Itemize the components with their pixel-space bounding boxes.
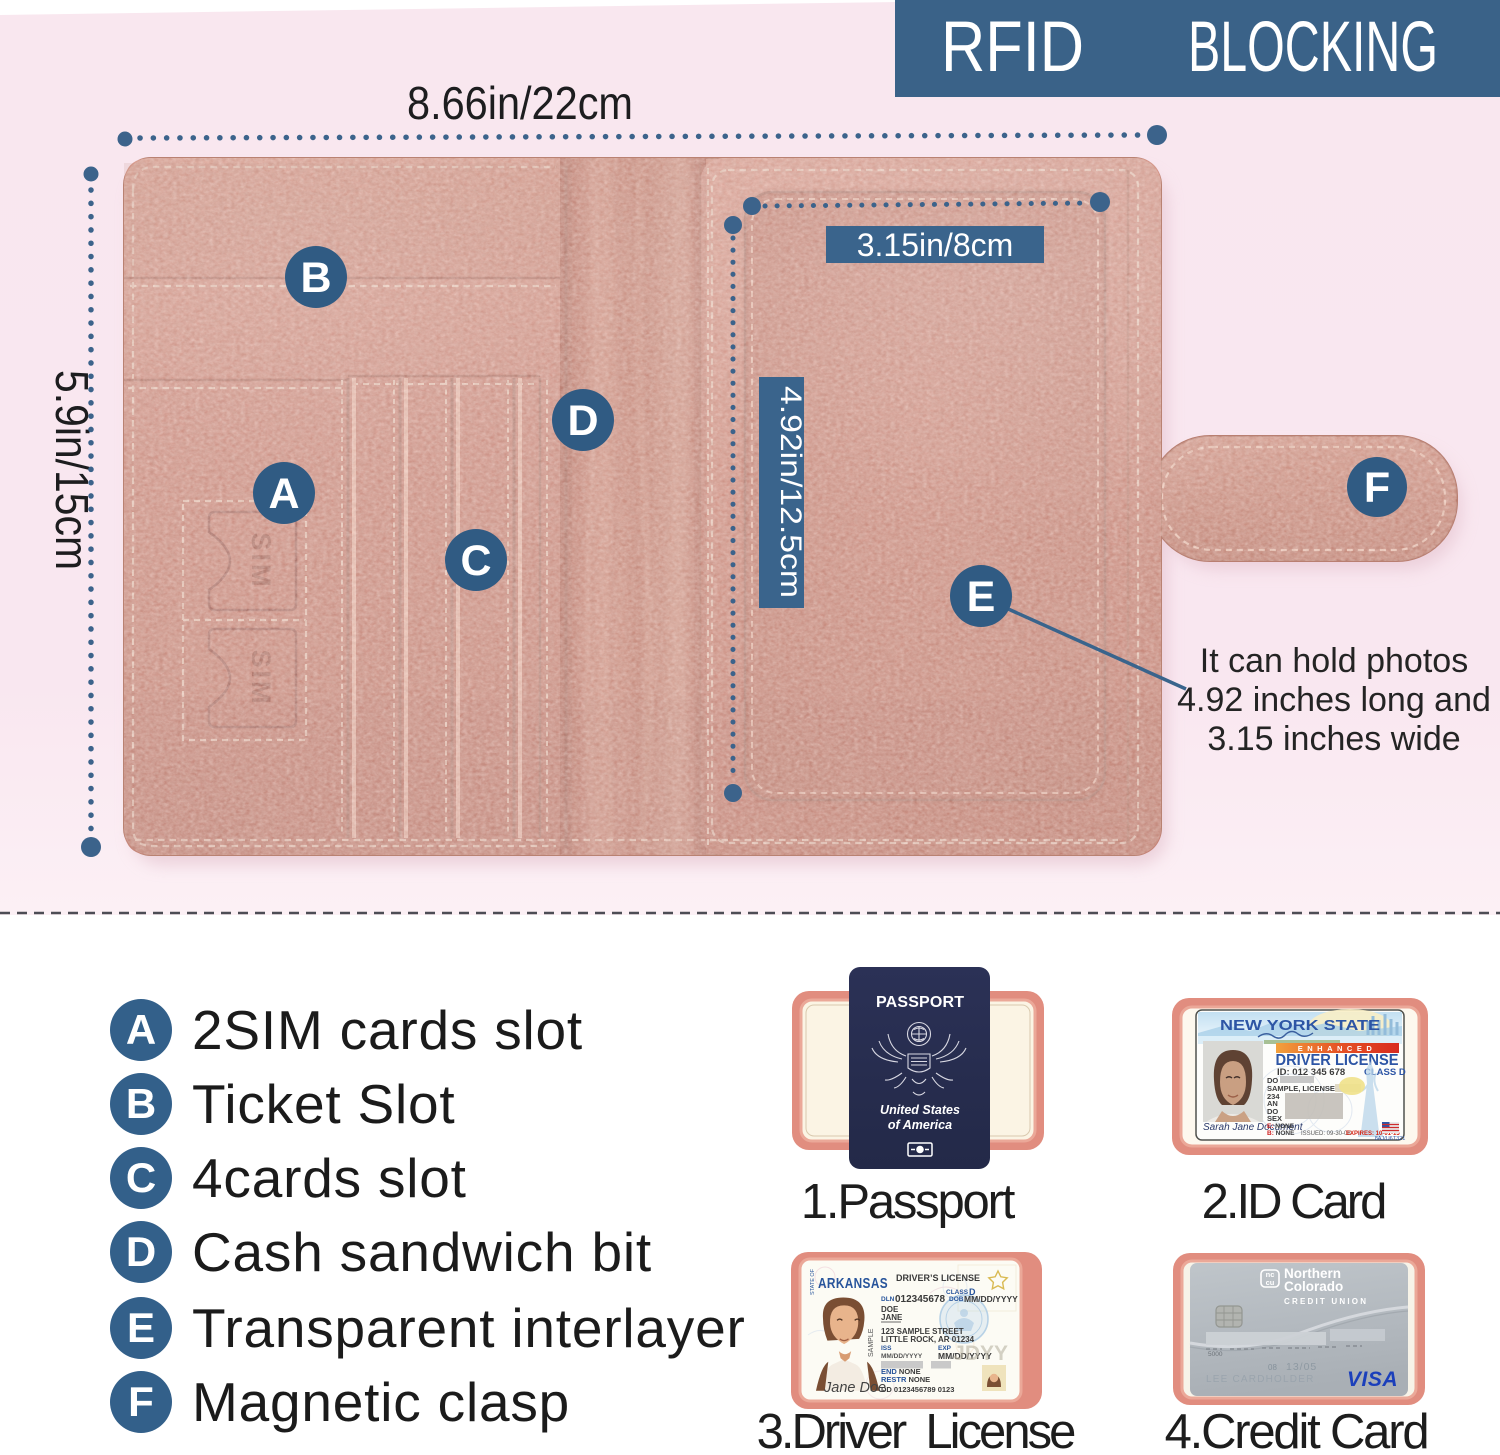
svg-text:MM/DD/YYYY: MM/DD/YYYY <box>881 1353 923 1360</box>
svg-text:JANE: JANE <box>881 1313 903 1322</box>
svg-text:E: NONE: E: NONE <box>1267 1123 1295 1130</box>
svg-text:C: C <box>460 537 491 585</box>
svg-text:3.15in/8cm: 3.15in/8cm <box>857 227 1014 263</box>
svg-text:of America: of America <box>888 1118 952 1132</box>
svg-text:DOB: DOB <box>949 1296 964 1303</box>
svg-text:8AJ/U6T321: 8AJ/U6T321 <box>1375 1136 1406 1142</box>
svg-text:08: 08 <box>1268 1363 1277 1372</box>
svg-text:4.92in/12.5cm: 4.92in/12.5cm <box>774 386 807 598</box>
svg-text:5000: 5000 <box>1208 1351 1223 1358</box>
svg-text:RESTR NONE: RESTR NONE <box>881 1375 930 1384</box>
svg-text:B: NONE: B: NONE <box>1267 1130 1295 1137</box>
svg-text:DRIVER’S LICENSE: DRIVER’S LICENSE <box>896 1273 980 1283</box>
svg-text:cu: cu <box>1266 1278 1275 1287</box>
svg-text:B: B <box>300 254 331 302</box>
svg-text:STATE OF: STATE OF <box>810 1268 816 1295</box>
svg-text:JDYY: JDYY <box>953 1342 1008 1365</box>
svg-text:CREDIT UNION: CREDIT UNION <box>1284 1297 1368 1306</box>
svg-text:DLN: DLN <box>881 1296 895 1303</box>
svg-text:SAMPLE: SAMPLE <box>868 1328 875 1357</box>
svg-text:United States: United States <box>880 1103 960 1117</box>
svg-text:8.66in/22cm: 8.66in/22cm <box>407 77 633 129</box>
svg-text:PASSPORT: PASSPORT <box>876 994 964 1011</box>
svg-text:A: A <box>268 470 299 518</box>
svg-text:ISS: ISS <box>881 1345 892 1352</box>
svg-text:E: E <box>967 573 996 621</box>
svg-text:DD 0123456789 0123: DD 0123456789 0123 <box>881 1385 954 1394</box>
svg-text:D: D <box>567 397 598 445</box>
svg-text:ARKANSAS: ARKANSAS <box>818 1275 888 1292</box>
svg-text:3.15 inches wide: 3.15 inches wide <box>1207 720 1460 758</box>
svg-text:LEE CARDHOLDER: LEE CARDHOLDER <box>1206 1374 1315 1385</box>
svg-text:VISA: VISA <box>1347 1368 1398 1391</box>
svg-text:MM/DD/YYYY: MM/DD/YYYY <box>964 1294 1018 1304</box>
svg-text:13/05: 13/05 <box>1286 1361 1317 1373</box>
svg-text:ISSUED: 09-30-08: ISSUED: 09-30-08 <box>1301 1131 1351 1137</box>
svg-text:Colorado: Colorado <box>1284 1279 1343 1294</box>
svg-text:4.92 inches long and: 4.92 inches long and <box>1177 681 1491 719</box>
svg-text:Jane Doe: Jane Doe <box>823 1380 886 1396</box>
svg-text:NEW YORK STATE: NEW YORK STATE <box>1220 1017 1380 1034</box>
svg-text:It can hold photos: It can hold photos <box>1200 642 1468 680</box>
svg-text:F: F <box>1364 464 1390 512</box>
svg-text:BLOCKING: BLOCKING <box>1188 8 1438 87</box>
svg-text:RFID: RFID <box>941 8 1084 87</box>
svg-text:012345678: 012345678 <box>895 1294 945 1305</box>
